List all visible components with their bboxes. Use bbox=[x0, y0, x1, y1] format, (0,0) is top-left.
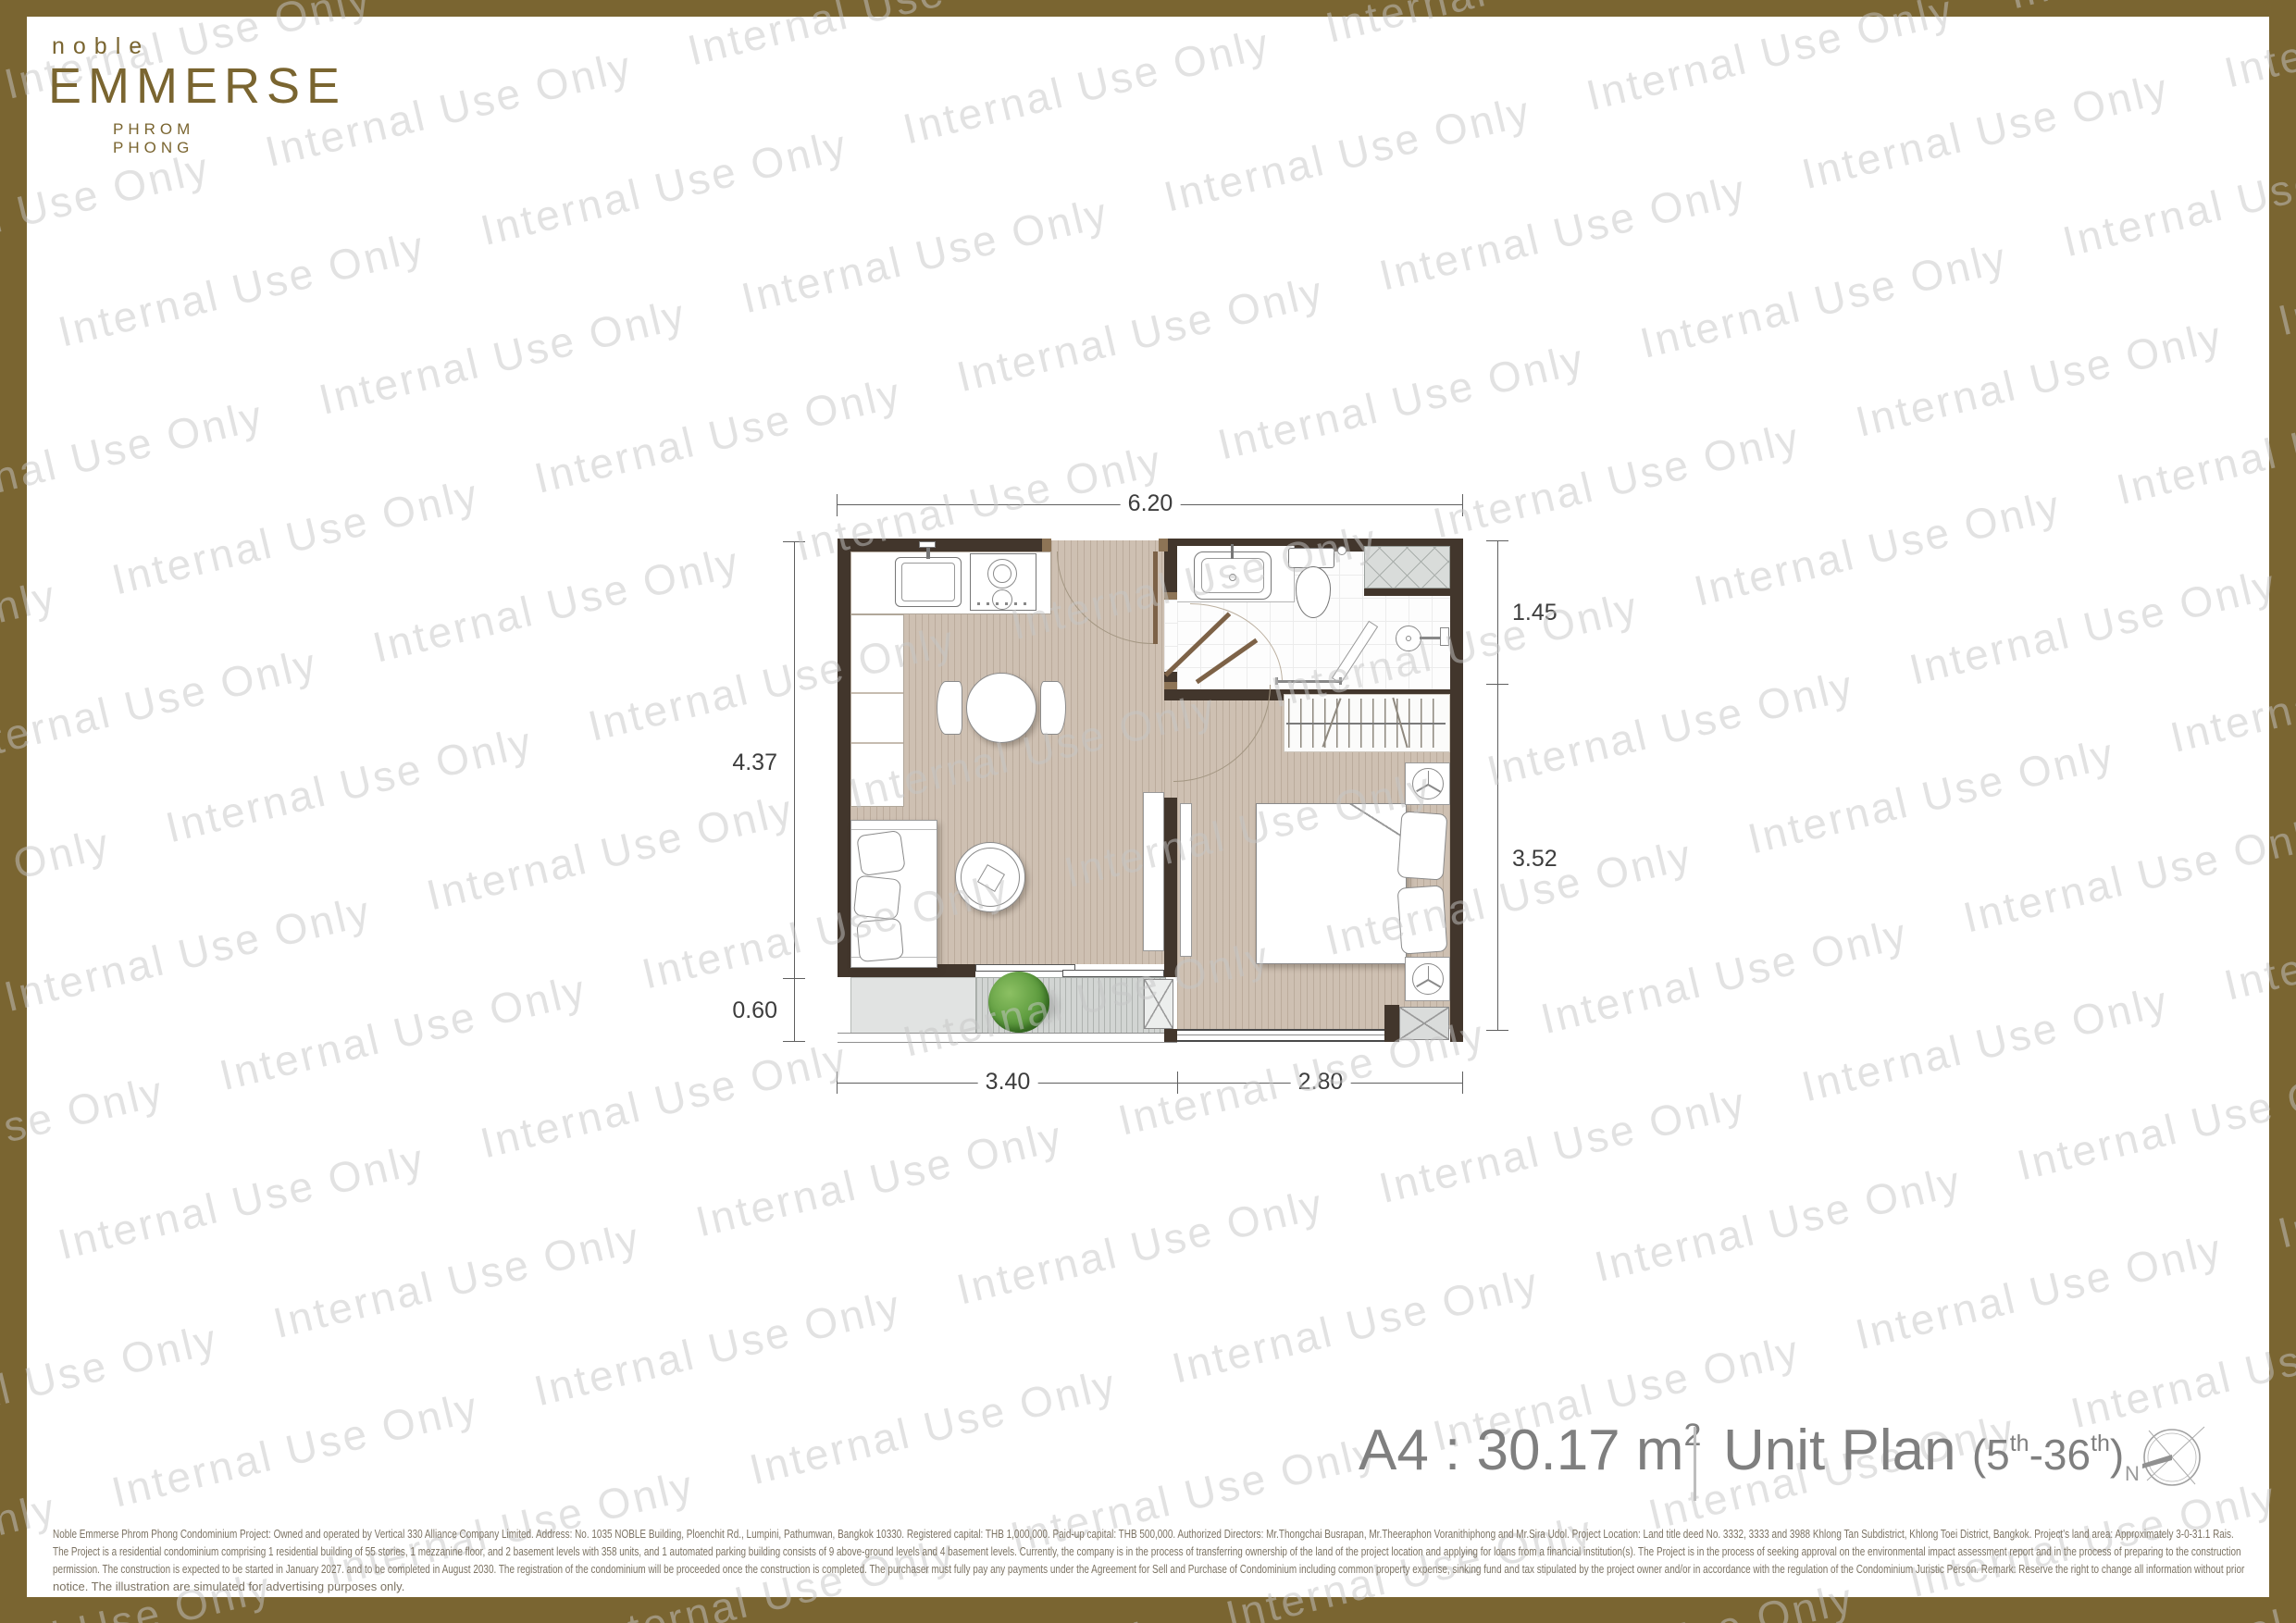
bathroom-doorway-floor bbox=[1164, 600, 1177, 672]
balcony-ledge bbox=[850, 977, 977, 1035]
tv-console-living bbox=[1143, 792, 1164, 951]
floors-sup1: th bbox=[2010, 1431, 2029, 1456]
dim-tick-bottom-3 bbox=[1462, 1072, 1463, 1094]
dim-label-bottom-right: 2.80 bbox=[1291, 1069, 1351, 1096]
tv-panel-bedroom bbox=[1180, 803, 1192, 957]
dim-tick-top-left bbox=[837, 494, 838, 516]
stove-burner-large-ring bbox=[993, 564, 1011, 583]
logo-brand: noble bbox=[52, 33, 150, 60]
disclaimer-line-2: The Project is a residential condominium… bbox=[53, 1542, 2244, 1560]
wall-top-left bbox=[838, 539, 1051, 551]
logo-location: PHROM PHONG bbox=[113, 120, 194, 157]
wall-shower-stub bbox=[1364, 588, 1450, 596]
bathroom-sink-drain bbox=[1229, 574, 1236, 581]
dim-label-left: 4.37 bbox=[718, 750, 777, 776]
toilet-tank bbox=[1288, 548, 1334, 568]
dim-tick-left-3 bbox=[783, 1041, 805, 1042]
bathroom-faucet bbox=[1231, 544, 1234, 559]
towel-bar bbox=[1277, 680, 1340, 683]
wall-left bbox=[838, 539, 850, 977]
bedroom-window bbox=[1177, 1029, 1384, 1042]
dining-chair-left bbox=[937, 681, 962, 735]
unit-plan-text: Unit Plan bbox=[1723, 1419, 1972, 1482]
bedroom-window-mullion bbox=[1177, 1035, 1384, 1035]
kitchen-sink-basin bbox=[901, 563, 955, 601]
dim-label-top: 6.20 bbox=[1121, 490, 1181, 517]
disclaimer-line-3: permission. The construction is expected… bbox=[53, 1560, 2244, 1578]
disclaimer-line-4: notice. The illustration are simulated f… bbox=[53, 1578, 2296, 1595]
bed-pillow-1 bbox=[1397, 811, 1448, 880]
kitchen-counter-left bbox=[850, 614, 904, 807]
dim-tick-right-3 bbox=[1486, 1030, 1508, 1031]
wall-living-bedroom bbox=[1164, 798, 1177, 964]
entry-jamb-left bbox=[1042, 539, 1051, 551]
ac-unit-balcony bbox=[1144, 979, 1173, 1029]
sofa-pillow-2 bbox=[853, 875, 901, 921]
floors-sup2: th bbox=[2091, 1431, 2110, 1456]
dim-line-bottom bbox=[838, 1083, 1463, 1084]
entry-threshold-floor bbox=[1051, 540, 1159, 551]
shower-tray bbox=[1364, 546, 1450, 588]
unit-area-sup: 2 bbox=[1684, 1418, 1702, 1453]
shower-mount bbox=[1440, 627, 1449, 646]
sliding-door-panel-1 bbox=[975, 964, 1075, 972]
dining-table bbox=[966, 673, 1036, 743]
dim-tick-bottom-1 bbox=[837, 1072, 838, 1094]
counter-division-2 bbox=[851, 742, 903, 744]
shower-head-center bbox=[1406, 636, 1411, 641]
wall-slider-jamb bbox=[1164, 964, 1177, 977]
dim-label-bottom-left: 3.40 bbox=[978, 1069, 1038, 1096]
stove-burner-small bbox=[992, 589, 1012, 610]
unit-area-label: A4 : 30.17 m2 bbox=[1359, 1418, 1701, 1483]
floor-plan: 6.20 4.37 0.60 1.45 3.52 3.40 2.80 bbox=[0, 0, 2296, 1623]
unit-area-text: A4 : 30.17 m bbox=[1359, 1419, 1684, 1482]
dim-label-left-bottom: 0.60 bbox=[718, 997, 777, 1024]
dim-line-left bbox=[794, 542, 795, 1042]
bed-pillow-2 bbox=[1397, 885, 1448, 954]
balcony-railing bbox=[838, 1033, 1177, 1043]
toilet-spray bbox=[1337, 546, 1347, 555]
logo-name: EMMERSE bbox=[48, 57, 346, 115]
wall-right bbox=[1450, 539, 1463, 1042]
footer-divider bbox=[1694, 1427, 1696, 1501]
disclaimer-line-1: Noble Emmerse Phrom Phong Condominium Pr… bbox=[53, 1525, 2244, 1542]
plant bbox=[988, 972, 1049, 1033]
dim-tick-top-right bbox=[1462, 494, 1463, 516]
dim-line-right bbox=[1497, 541, 1498, 1031]
disclaimer: Noble Emmerse Phrom Phong Condominium Pr… bbox=[53, 1525, 2296, 1595]
nightstand-bottom-lamp bbox=[1412, 963, 1444, 995]
counter-division-1 bbox=[851, 692, 903, 694]
sliding-door-panel-2 bbox=[1062, 970, 1164, 977]
sofa-pillow-3 bbox=[856, 918, 904, 962]
compass-north-label: N bbox=[2125, 1462, 2140, 1485]
nightstand-top-lamp bbox=[1412, 768, 1444, 799]
kitchen-faucet-base bbox=[919, 541, 936, 548]
entry-jamb-right bbox=[1159, 539, 1168, 551]
towel-bar-cap-right bbox=[1339, 677, 1342, 685]
floors-mid: -36 bbox=[2029, 1431, 2091, 1479]
dim-label-right-top: 1.45 bbox=[1512, 600, 1558, 626]
dim-tick-right-1 bbox=[1486, 540, 1508, 541]
dim-label-right-bottom: 3.52 bbox=[1512, 846, 1558, 873]
ac-unit-bedroom bbox=[1399, 1007, 1449, 1040]
wall-bedroom-bottom-pier bbox=[1384, 1005, 1399, 1042]
dining-chair-right bbox=[1040, 681, 1066, 735]
wall-railing-pier bbox=[1164, 1029, 1177, 1042]
bath-jamb-top bbox=[1164, 592, 1177, 600]
stove-controls bbox=[977, 602, 1029, 605]
sofa-pillow-1 bbox=[856, 830, 906, 876]
entry-door-leaf bbox=[1153, 551, 1158, 644]
dim-tick-left-2 bbox=[783, 978, 805, 979]
floors-open: (5 bbox=[1972, 1431, 2010, 1479]
towel-bar-cap-left bbox=[1275, 677, 1278, 685]
unit-plan-label: Unit Plan (5th-36th) bbox=[1723, 1418, 2124, 1483]
floorplan-sheet: noble EMMERSE PHROM PHONG bbox=[0, 0, 2296, 1623]
dim-tick-left-1 bbox=[783, 541, 805, 542]
bed-blanket-fold bbox=[1349, 804, 1405, 839]
dim-tick-bottom-2 bbox=[1177, 1072, 1178, 1094]
compass-icon: N bbox=[2119, 1419, 2212, 1501]
wardrobe-rail bbox=[1286, 723, 1446, 725]
dim-tick-right-2 bbox=[1486, 684, 1508, 685]
